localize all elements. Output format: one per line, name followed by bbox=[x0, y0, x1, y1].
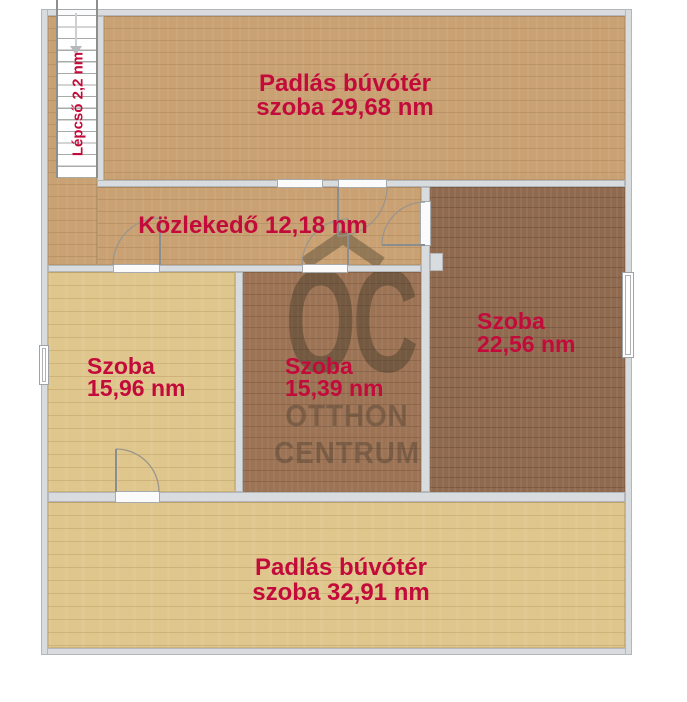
room-left-label: Szoba 15,96 nm bbox=[87, 355, 185, 399]
wall-attic-top-left bbox=[97, 16, 104, 187]
watermark-word-2: CENTRUM bbox=[274, 434, 420, 471]
window-left-wall bbox=[39, 345, 49, 385]
room-area: 22,56 nm bbox=[477, 333, 575, 356]
window-pane bbox=[625, 275, 631, 355]
room-name: Szoba bbox=[285, 355, 383, 377]
stairs-direction-line bbox=[75, 13, 77, 46]
room-area: 15,39 nm bbox=[285, 377, 383, 399]
room-middle-label: Szoba 15,39 nm bbox=[285, 355, 383, 399]
room-attic-top-label: Padlás búvótér szoba 29,68 nm bbox=[256, 72, 433, 120]
opening-attic-top-door bbox=[338, 179, 387, 188]
window-right-wall bbox=[622, 272, 634, 358]
watermark-word-1: OTTHON bbox=[274, 397, 420, 434]
opening-room-right-door bbox=[420, 201, 431, 246]
stair-rail-right bbox=[96, 0, 98, 178]
room-attic-bottom-label: Padlás búvótér szoba 32,91 nm bbox=[252, 555, 429, 605]
wall-left-middle bbox=[235, 272, 243, 492]
opening-attic-bottom-door bbox=[115, 491, 160, 503]
wall-corridor-bottom bbox=[48, 265, 421, 272]
room-area: szoba 32,91 nm bbox=[252, 580, 429, 605]
stair-threshold bbox=[56, 9, 98, 16]
room-name: Padlás búvótér bbox=[256, 72, 433, 96]
corridor-label: Közlekedő 12,18 nm bbox=[138, 212, 367, 240]
wall-pillar-corner bbox=[430, 253, 443, 271]
stairs-label: Lépcső 2,2 nm bbox=[70, 52, 87, 156]
room-name: Padlás búvótér bbox=[252, 555, 429, 580]
opening-attic-top-cased bbox=[277, 179, 323, 188]
opening-room-left-door bbox=[113, 264, 160, 273]
room-area: 15,96 nm bbox=[87, 377, 185, 399]
room-right-label: Szoba 22,56 nm bbox=[477, 310, 575, 356]
room-name: Szoba bbox=[87, 355, 185, 377]
outer-wall-left bbox=[41, 9, 48, 655]
outer-wall-top bbox=[41, 9, 632, 16]
room-name: Szoba bbox=[477, 310, 575, 333]
opening-room-middle-door bbox=[302, 264, 348, 273]
room-area: szoba 29,68 nm bbox=[256, 96, 433, 120]
window-pane bbox=[42, 348, 46, 382]
floor-plan: OC OTTHON CENTRUM bbox=[0, 0, 687, 702]
watermark-logo-words: OTTHON CENTRUM bbox=[274, 397, 420, 471]
stair-rail-left bbox=[56, 0, 58, 178]
outer-wall-bottom bbox=[41, 648, 632, 655]
